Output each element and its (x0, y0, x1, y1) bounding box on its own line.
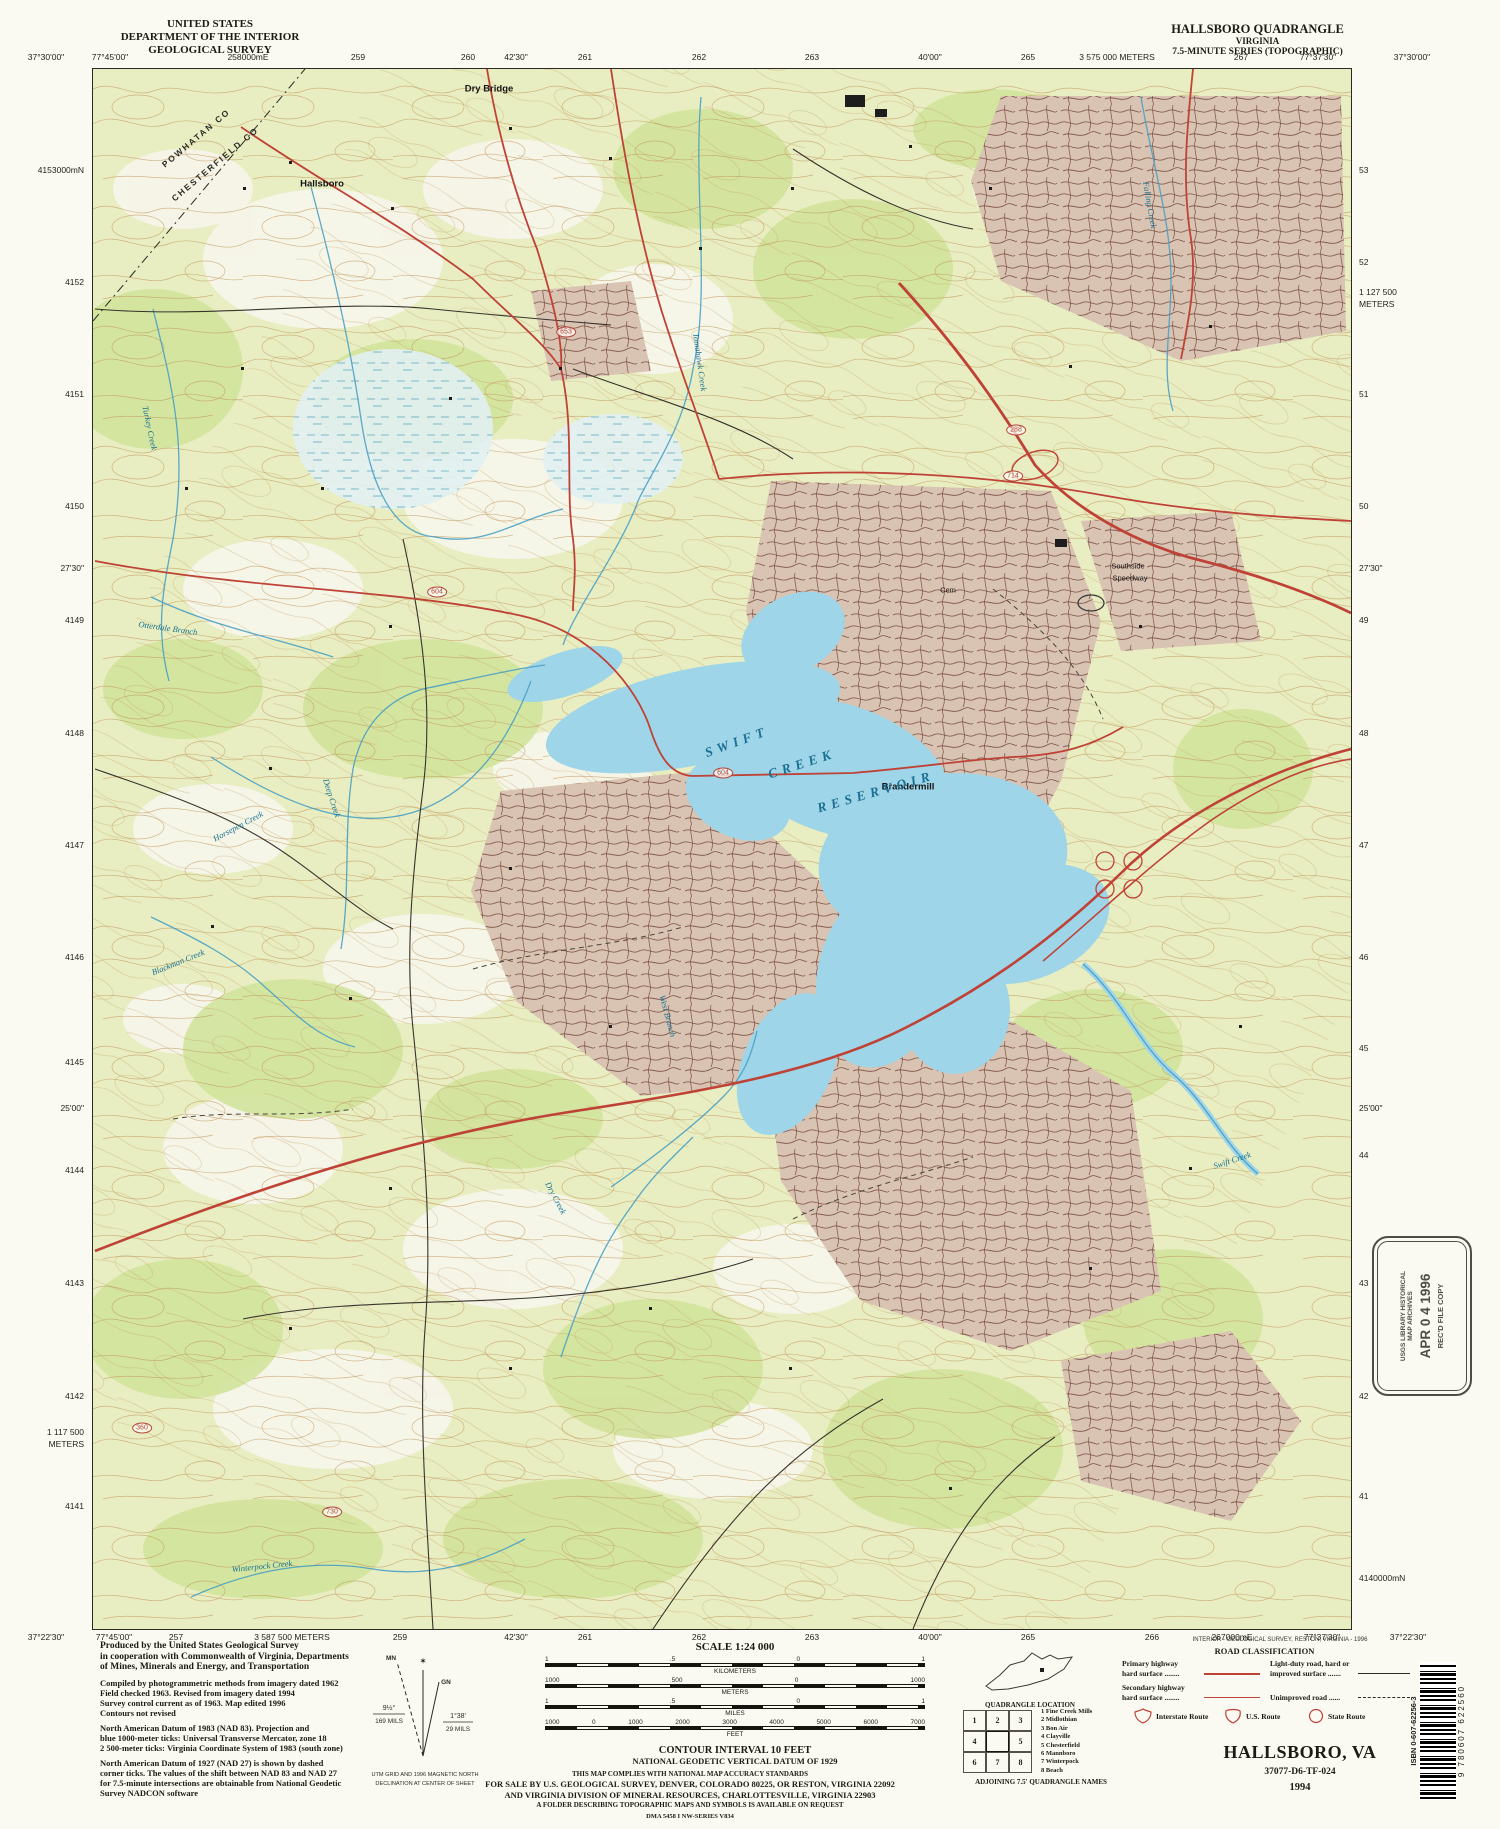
grid-coordinate-label: 48 (1359, 728, 1368, 738)
agency-line: GEOLOGICAL SURVEY (95, 44, 325, 57)
grid-coordinate-label: 4141 (65, 1501, 84, 1511)
virginia-outline-icon (982, 1648, 1078, 1694)
stamp-line: MAP ARCHIVES (1407, 1242, 1415, 1390)
grid-coordinate-label: 52 (1359, 257, 1368, 267)
grid-coordinate-label: 46 (1359, 952, 1368, 962)
scale-tick: 1 (545, 1698, 549, 1705)
compliance-line: THIS MAP COMPLIES WITH NATIONAL MAP ACCU… (340, 1770, 1040, 1779)
grid-coordinate-label: 263 (805, 52, 819, 62)
adjoining-grid-cell: 1 (963, 1710, 986, 1731)
grid-coordinate-label: 42 (1359, 1391, 1368, 1401)
scale-tick: 6000 (863, 1719, 877, 1726)
grid-coordinate-label: 4140000mN (1359, 1573, 1405, 1583)
adjoining-quad-name: 8 Beach (1041, 1767, 1131, 1775)
grid-coordinate-label: 4146 (65, 952, 84, 962)
primary-highway-sample (1204, 1673, 1260, 1675)
barcode-bars (1419, 1662, 1457, 1800)
us-route-label: U.S. Route (1246, 1712, 1280, 1721)
scale-bar (545, 1663, 925, 1667)
scale-tick: 1 (545, 1656, 549, 1663)
grid-coordinate-label: 265 (1021, 1632, 1035, 1642)
grid-coordinate-label: 261 (578, 52, 592, 62)
adjoining-grid-cell: 3 (1009, 1710, 1032, 1731)
isbn-barcode: ISBN 0-607-62256-3 9 780607 622560 (1400, 1662, 1466, 1800)
adjoining-grid-cell: 2 (986, 1710, 1009, 1731)
state-route-circle-icon (1308, 1708, 1324, 1724)
quad-title: HALLSBORO QUADRANGLE (1140, 22, 1375, 36)
grid-coordinate-label: 47 (1359, 840, 1368, 850)
grid-coordinate-label: METERS (49, 1439, 84, 1449)
scale-tick: 0 (592, 1719, 596, 1726)
map-edge-labels-right: 53521 127 500METERS515027'30"49484746452… (1355, 0, 1500, 1829)
stamp-date: APR 0 4 1996 (1418, 1242, 1433, 1390)
agency-header: UNITED STATES DEPARTMENT OF THE INTERIOR… (95, 18, 325, 57)
true-north-star-icon: ✶ (419, 1656, 427, 1666)
scale-bar (545, 1705, 925, 1709)
adjoining-grid-cell: 8 (1009, 1752, 1032, 1773)
quad-state: VIRGINIA (1140, 36, 1375, 47)
grid-coordinate-label: METERS (1359, 299, 1394, 309)
grid-coordinate-label: 25'00" (60, 1103, 84, 1113)
scale-tick: .5 (670, 1698, 675, 1705)
quadrangle-location: QUADRANGLE LOCATION (975, 1648, 1085, 1709)
adjoining-grid-cell: 6 (963, 1752, 986, 1773)
grid-coordinate-label: 45 (1359, 1043, 1368, 1053)
adjoining-grid-cell: 7 (986, 1752, 1009, 1773)
legend-primary-label2: hard surface ........ (1122, 1669, 1180, 1678)
scale-tick: 0 (797, 1656, 801, 1663)
scale-tick: 1000 (545, 1719, 559, 1726)
grid-coordinate-label: 262 (692, 52, 706, 62)
grid-coordinate-label: 53 (1359, 165, 1368, 175)
grid-coordinate-label: 27'30" (60, 563, 84, 573)
grid-coordinate-label: 43 (1359, 1278, 1368, 1288)
us-route-shield-icon (1224, 1708, 1242, 1724)
grid-coordinate-label: 1 127 500 (1359, 287, 1397, 297)
secondary-highway-sample (1204, 1697, 1260, 1698)
magnetic-north-label: MN (386, 1655, 396, 1662)
interstate-shield-icon (1134, 1708, 1152, 1724)
adjoining-caption: ADJOINING 7.5' QUADRANGLE NAMES (951, 1778, 1131, 1786)
grid-coordinate-label: 49 (1359, 615, 1368, 625)
adjoining-quad-name: 7 Winterpock (1041, 1758, 1131, 1766)
grid-coordinate-label: 50 (1359, 501, 1368, 511)
scale-bar-row: 1.501MILES (545, 1698, 925, 1717)
stamp-line: USGS LIBRARY HISTORICAL (1400, 1242, 1408, 1390)
scale-tick: 1000 (911, 1677, 925, 1684)
scale-bar-row: 1.501KILOMETERS (545, 1656, 925, 1675)
grid-coordinate-label: 4143 (65, 1278, 84, 1288)
mn-mils: 169 MILS (375, 1718, 403, 1725)
grid-coordinate-label: 42'30" (504, 52, 528, 62)
scale-tick: 1 (921, 1656, 925, 1663)
adjoining-grid-cell (986, 1731, 1009, 1752)
legend-secondary-label: Secondary highway (1122, 1683, 1185, 1692)
sale-info: THIS MAP COMPLIES WITH NATIONAL MAP ACCU… (340, 1770, 1040, 1820)
grid-coordinate-label: 4153000mN (38, 165, 84, 175)
legend-secondary-label2: hard surface ........ (1122, 1693, 1180, 1702)
mn-degrees: 9½° (383, 1704, 396, 1712)
agency-line: DEPARTMENT OF THE INTERIOR (95, 31, 325, 44)
topo-map-body (92, 68, 1352, 1630)
gn-mils: 29 MILS (446, 1726, 471, 1733)
grid-coordinate-label: 4152 (65, 277, 84, 287)
quad-series: 7.5-MINUTE SERIES (TOPOGRAPHIC) (1140, 47, 1375, 58)
adjoining-grid-cell: 4 (963, 1731, 986, 1752)
usgs-topo-map-sheet: { "header": { "us": "UNITED STATES", "de… (0, 0, 1500, 1829)
legend-lightduty-label2: improved surface ....... (1270, 1669, 1341, 1678)
scale-unit: FEET (545, 1731, 925, 1738)
scale-tick: 500 (672, 1677, 683, 1684)
state-route-label: State Route (1328, 1712, 1365, 1721)
grid-coordinate-label: 42'30" (504, 1632, 528, 1642)
grid-coordinate-label: 37°22'30" (28, 1632, 64, 1642)
scale-bar (545, 1684, 925, 1688)
stamp-line: REC'D FILE COPY (1436, 1242, 1445, 1390)
scale-tick: 7000 (911, 1719, 925, 1726)
vertical-datum: NATIONAL GEODETIC VERTICAL DATUM OF 1929 (545, 1756, 925, 1766)
interior-credit: INTERIOR - GEOLOGICAL SURVEY, RESTON, VI… (1150, 1637, 1410, 1643)
grid-coordinate-label: 1 117 500 (47, 1427, 84, 1437)
grid-coordinate-label: 4151 (65, 389, 84, 399)
scale-block: SCALE 1:24 000 1.501KILOMETERS1000500010… (545, 1641, 925, 1766)
grid-coordinate-label: 4148 (65, 728, 84, 738)
grid-coordinate-label: 4149 (65, 615, 84, 625)
grid-coordinate-label: 25'00" (1359, 1103, 1383, 1113)
sale-line: FOR SALE BY U.S. GEOLOGICAL SURVEY, DENV… (340, 1779, 1040, 1790)
scale-unit: MILES (545, 1710, 925, 1717)
adjoining-quad-name: 6 Mannboro (1041, 1750, 1131, 1758)
received-date-stamp: USGS LIBRARY HISTORICAL MAP ARCHIVES APR… (1372, 1236, 1472, 1396)
grid-north-label: GN (441, 1679, 451, 1686)
quad-location-dot (1040, 1668, 1044, 1672)
grid-coordinate-label: 4147 (65, 840, 84, 850)
adjoining-grid: 12345678 (963, 1710, 1032, 1773)
grid-coordinate-label: 4142 (65, 1391, 84, 1401)
grid-coordinate-label: 37°30'00" (28, 52, 64, 62)
road-classification-legend: ROAD CLASSIFICATION Primary highway hard… (1112, 1646, 1417, 1736)
adjoining-grid-cell: 5 (1009, 1731, 1032, 1752)
scale-bar (545, 1726, 925, 1730)
scale-tick: 1 (921, 1698, 925, 1705)
scale-tick: 2000 (675, 1719, 689, 1726)
scale-tick: 1000 (628, 1719, 642, 1726)
legend-lightduty-label: Light-duty road, hard or (1270, 1659, 1349, 1668)
map-edge-labels-left: 4153000mN41524151415027'30"4149414841474… (0, 0, 88, 1829)
grid-coordinate-label: 27'30" (1359, 563, 1383, 573)
sale-line: AND VIRGINIA DIVISION OF MINERAL RESOURC… (340, 1790, 1040, 1801)
contour-interval: CONTOUR INTERVAL 10 FEET (545, 1745, 925, 1756)
topo-map-graphic (93, 69, 1352, 1630)
interstate-route-label: Interstate Route (1156, 1712, 1208, 1721)
folder-line: A FOLDER DESCRIBING TOPOGRAPHIC MAPS AND… (340, 1801, 1040, 1810)
grid-coordinate-label: 265 (1021, 52, 1035, 62)
scale-tick: 3000 (722, 1719, 736, 1726)
grid-coordinate-label: 4144 (65, 1165, 84, 1175)
legend-primary-label: Primary highway (1122, 1659, 1178, 1668)
dma-series: DMA 5458 I NW-SERIES V834 (340, 1813, 1040, 1820)
barcode-digits: 9 780607 622560 (1457, 1662, 1466, 1800)
scale-tick: 5000 (816, 1719, 830, 1726)
quad-header: HALLSBORO QUADRANGLE VIRGINIA 7.5-MINUTE… (1140, 22, 1375, 58)
scale-unit: KILOMETERS (545, 1668, 925, 1675)
grid-coordinate-label: 37°30'00" (1394, 52, 1430, 62)
scale-tick: .5 (670, 1656, 675, 1663)
scale-bar-row: 100001000200030004000500060007000FEET (545, 1719, 925, 1738)
adjoining-quad-name: 5 Chesterfield (1041, 1742, 1131, 1750)
scale-tick: 0 (795, 1677, 799, 1684)
scale-unit: METERS (545, 1689, 925, 1696)
grid-coordinate-label: 44 (1359, 1150, 1368, 1160)
grid-coordinate-label: 260 (461, 52, 475, 62)
grid-coordinate-label: 40'00" (918, 52, 942, 62)
agency-line: UNITED STATES (95, 18, 325, 31)
grid-coordinate-label: 51 (1359, 389, 1368, 399)
scale-bars: 1.501KILOMETERS100050001000METERS1.501MI… (545, 1656, 925, 1738)
scale-tick: 1000 (545, 1677, 559, 1684)
scale-bar-row: 100050001000METERS (545, 1677, 925, 1696)
grid-coordinate-label: 259 (351, 52, 365, 62)
scale-tick: 4000 (769, 1719, 783, 1726)
scale-title: SCALE 1:24 000 (545, 1641, 925, 1653)
road-class-title: ROAD CLASSIFICATION (1112, 1646, 1417, 1656)
gn-degrees: 1°38' (450, 1712, 466, 1720)
grid-coordinate-label: 4150 (65, 501, 84, 511)
isbn-text: ISBN 0-607-62256-3 (1409, 1662, 1418, 1800)
legend-unimproved-label: Unimproved road ...... (1270, 1693, 1340, 1702)
scale-tick: 0 (797, 1698, 801, 1705)
grid-coordinate-label: 4145 (65, 1057, 84, 1067)
grid-coordinate-label: 41 (1359, 1491, 1368, 1501)
